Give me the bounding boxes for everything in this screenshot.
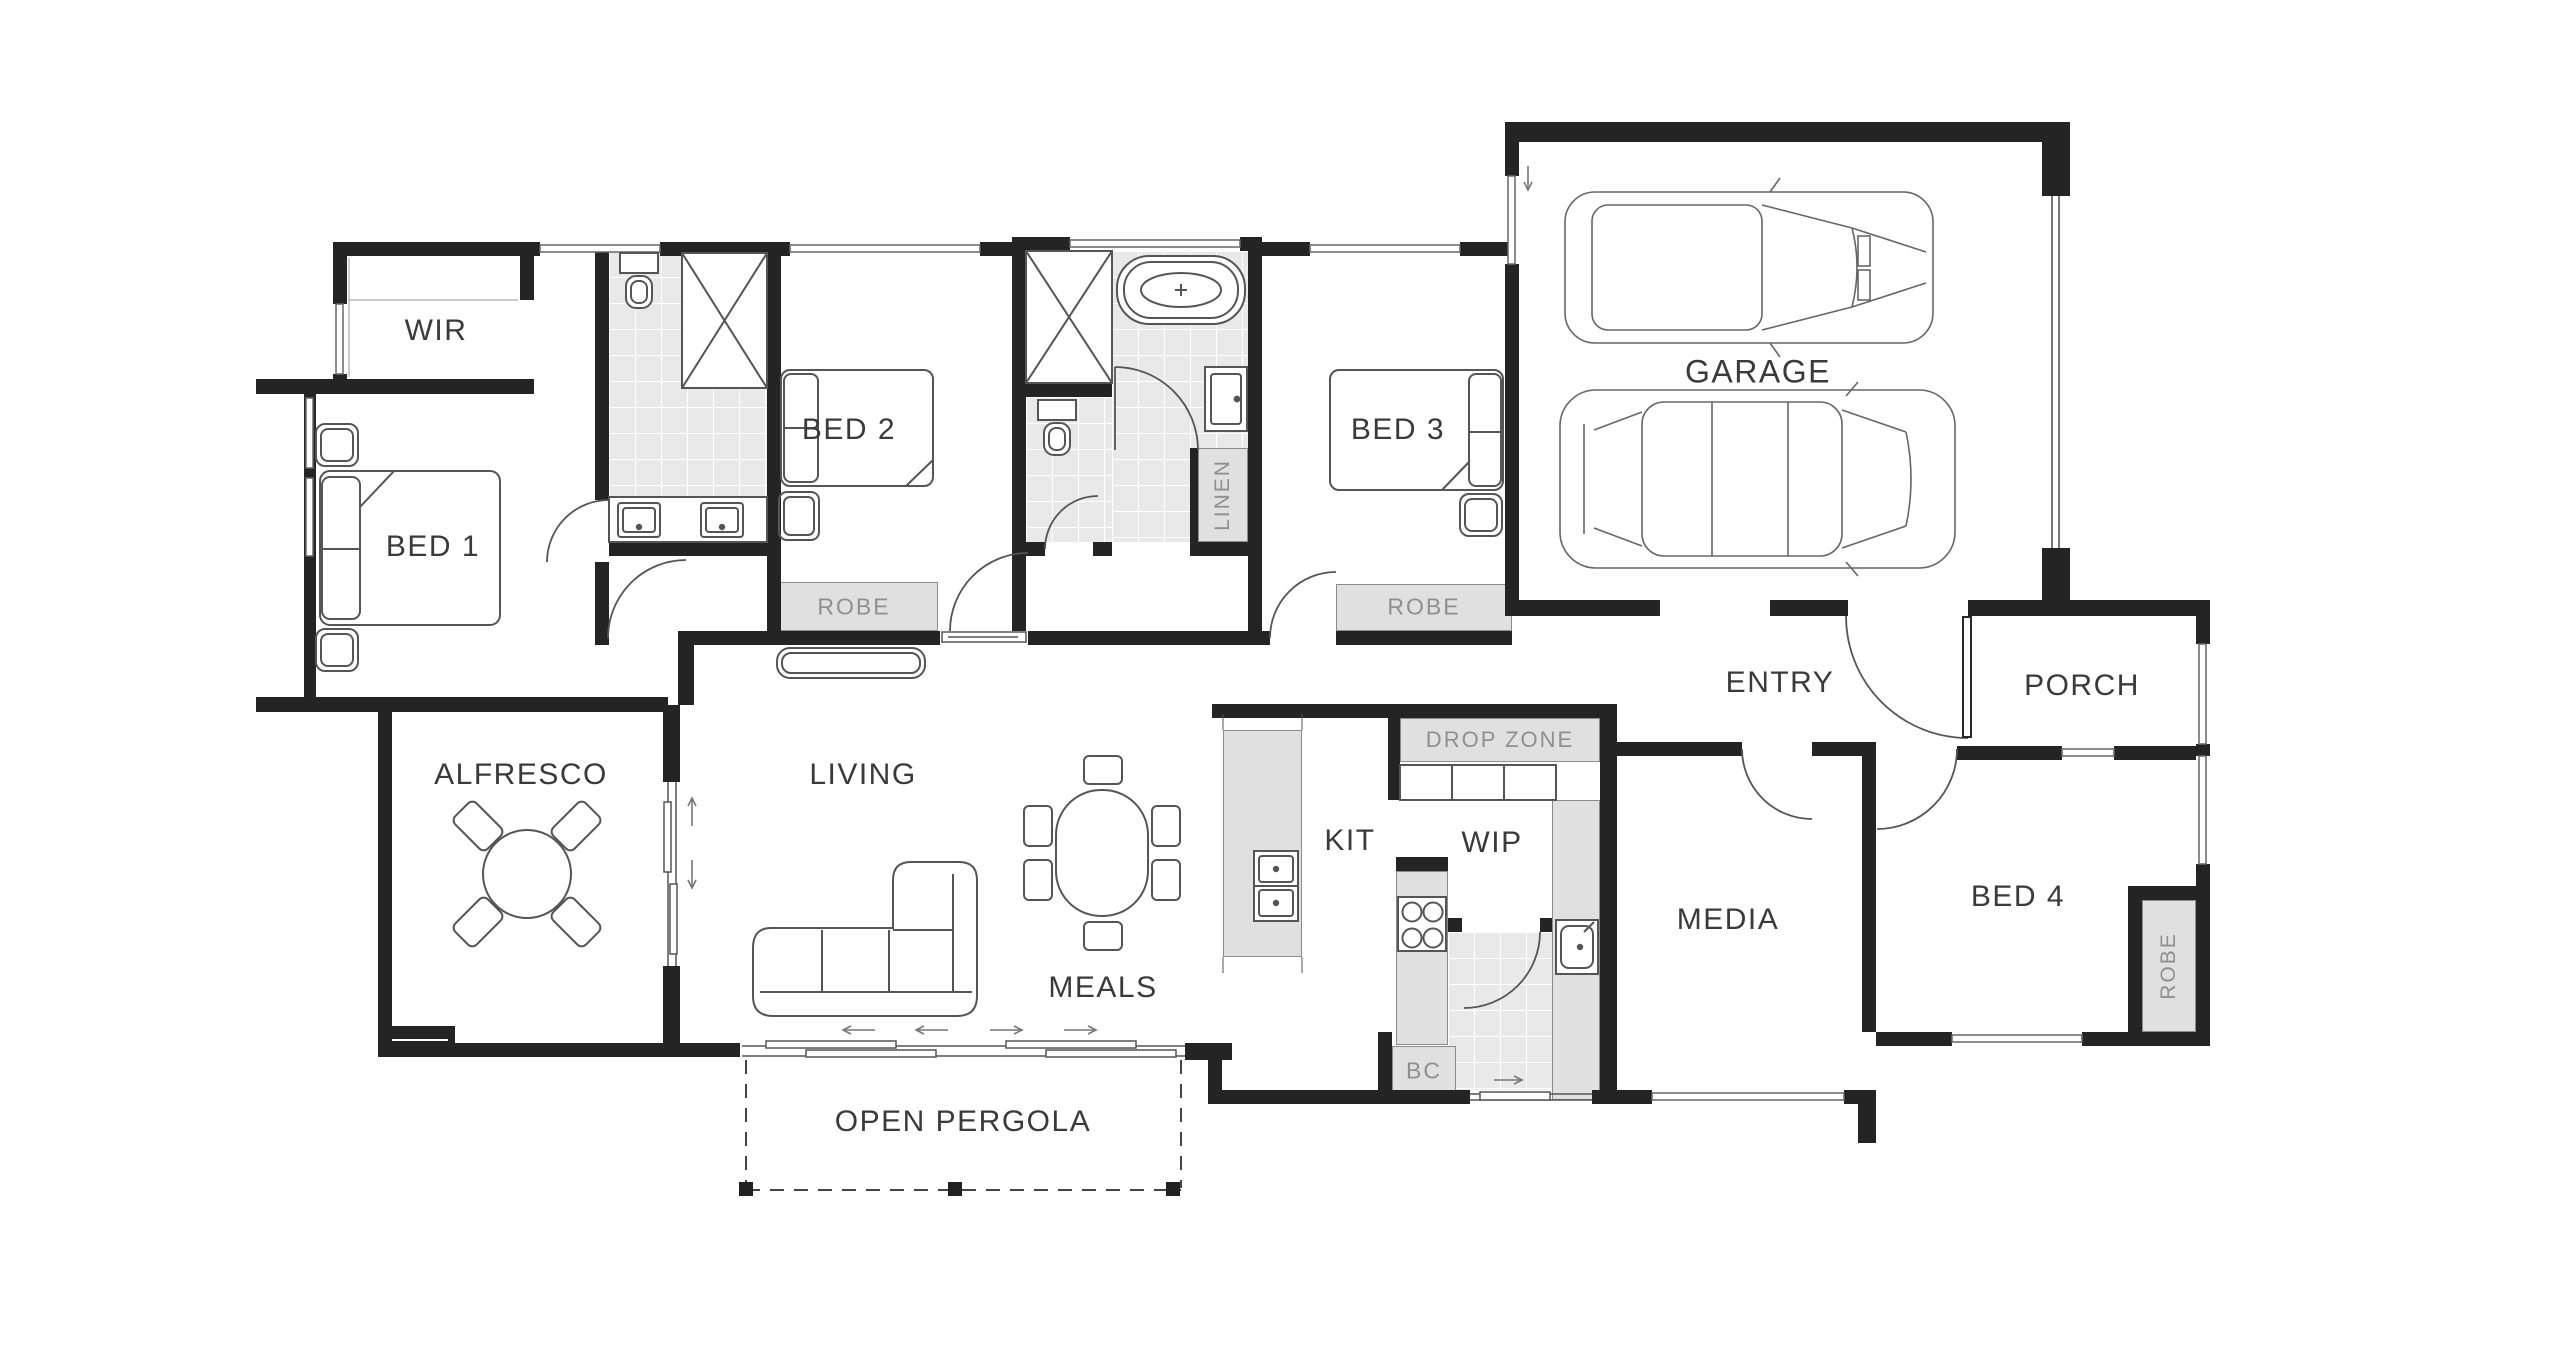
- laundry-sink-icon: [1556, 920, 1598, 974]
- front-door-leaf: [1962, 616, 1972, 738]
- room-label-wip: WIP: [1461, 826, 1522, 860]
- garage-door: [2052, 196, 2059, 548]
- room-label-garage: GARAGE: [1685, 354, 1831, 391]
- room-label-bed3: BED 3: [1351, 413, 1445, 447]
- bed3-icon: [1330, 370, 1503, 536]
- alfresco-table-icon: [451, 799, 603, 949]
- wc-toilet-icon: [1038, 400, 1076, 455]
- room-label-porch: PORCH: [2024, 669, 2140, 703]
- storage-label-drop-zone: DROP ZONE: [1426, 727, 1574, 753]
- cooktop-icon: [1398, 897, 1446, 951]
- plan-linework: [0, 0, 2560, 1351]
- room-label-meals: MEALS: [1048, 971, 1157, 1005]
- ensuite-shower-icon: [682, 253, 767, 388]
- room-label-alfresco: ALFRESCO: [434, 758, 608, 792]
- bath-vanity-icon: [1205, 367, 1247, 431]
- ensuite-toilet-icon: [620, 253, 658, 308]
- room-label-kit: KIT: [1324, 824, 1375, 858]
- island-sink-icon: [1223, 714, 1302, 973]
- car-icon: [1565, 178, 1933, 357]
- room-label-open-pergola: OPEN PERGOLA: [835, 1105, 1091, 1139]
- room-label-bed1: BED 1: [386, 530, 480, 564]
- pantry-bench: [1400, 765, 1556, 800]
- bed2-icon: [779, 370, 933, 540]
- bathtub-icon: [1117, 256, 1245, 324]
- window: [306, 176, 2206, 1100]
- storage-label-bc: BC: [1406, 1058, 1442, 1085]
- room-label-bed2: BED 2: [802, 413, 896, 447]
- storage-label-robe4: ROBE: [2157, 932, 2181, 1000]
- floor-plan: WIR BED 1 BED 2 BED 3 GARAGE ENTRY PORCH…: [0, 0, 2560, 1351]
- dining-table-icon: [1024, 756, 1180, 950]
- sofa-icon: [753, 862, 977, 1016]
- room-label-entry: ENTRY: [1726, 666, 1835, 700]
- room-label-wir: WIR: [405, 314, 468, 348]
- rug-icon: [777, 648, 925, 678]
- bath-shower-icon: [1026, 251, 1112, 383]
- storage-label-robe2: ROBE: [817, 594, 890, 621]
- storage-label-linen: LINEN: [1211, 459, 1235, 531]
- room-label-bed4: BED 4: [1971, 880, 2065, 914]
- ensuite-vanity-icon: [609, 497, 767, 542]
- car-icon: [1560, 382, 1955, 576]
- room-label-living: LIVING: [809, 758, 916, 792]
- storage-label-robe3: ROBE: [1387, 594, 1460, 621]
- room-label-media: MEDIA: [1677, 903, 1780, 937]
- sliding-door: [664, 632, 1592, 1100]
